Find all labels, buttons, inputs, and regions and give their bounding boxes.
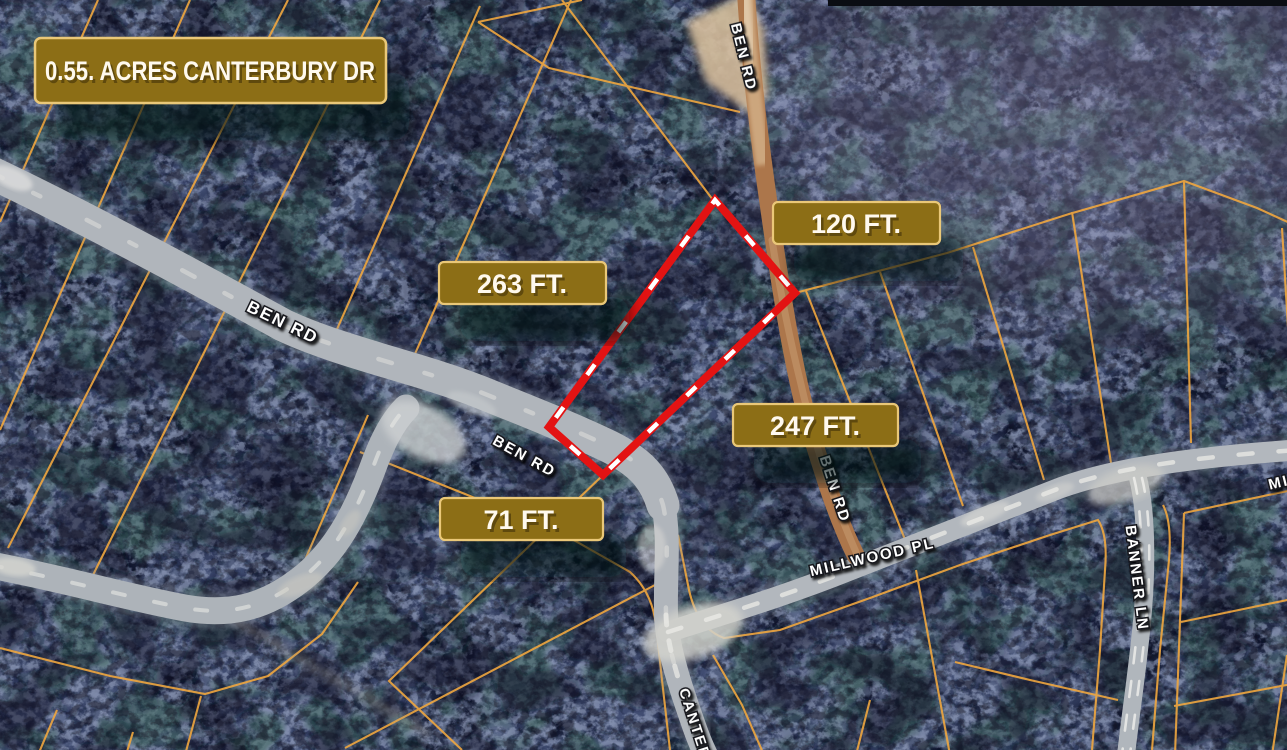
svg-text:247 FT.: 247 FT.: [770, 411, 860, 441]
svg-text:120 FT.: 120 FT.: [811, 209, 901, 239]
svg-text:0.55. ACRES CANTERBURY DR: 0.55. ACRES CANTERBURY DR: [45, 56, 375, 86]
svg-text:71 FT.: 71 FT.: [483, 505, 558, 535]
svg-text:263 FT.: 263 FT.: [477, 269, 567, 299]
